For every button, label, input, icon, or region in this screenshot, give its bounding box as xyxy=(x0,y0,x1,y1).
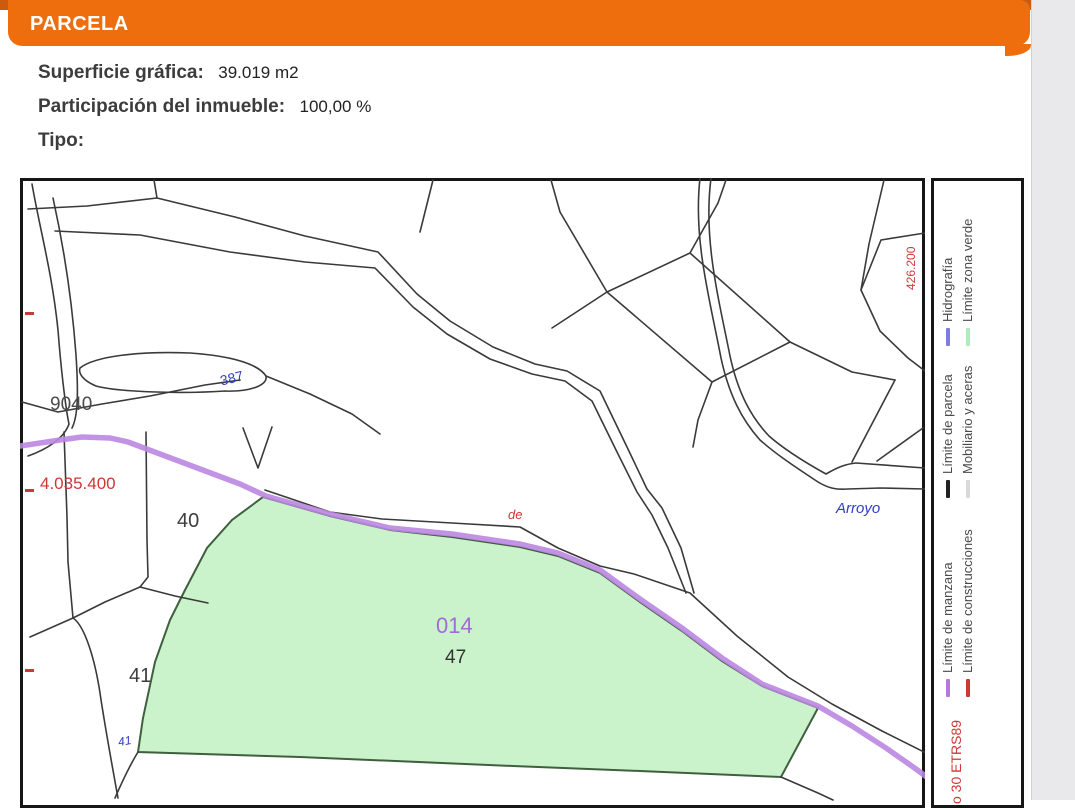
legend-item-l-mite-zona-verde: Límite zona verde xyxy=(961,219,974,346)
superficie-row: Superficie gráfica: 39.019 m2 xyxy=(38,62,299,84)
legend-item-l-mite-de-manzana: Límite de manzana xyxy=(941,562,954,697)
page-edge-strip xyxy=(1031,0,1075,800)
legend-item-hidrograf-a: Hidrografía xyxy=(941,258,954,346)
coordinate-tick-mark xyxy=(25,669,34,672)
legend-swatch xyxy=(946,328,950,346)
legend-item-mobiliario-y-aceras: Mobiliario y aceras xyxy=(961,366,974,498)
page-title: PARCELA xyxy=(30,13,129,36)
block-label-9040: 9040 xyxy=(50,395,92,414)
y-coordinate-label: 4.035.400 xyxy=(40,475,116,492)
legend-swatch xyxy=(966,679,970,697)
street-label-de: de xyxy=(508,508,522,521)
legend-swatch xyxy=(966,480,970,498)
legend-item-l-mite-de-parcela: Límite de parcela xyxy=(941,374,954,498)
legend-swatch xyxy=(946,679,950,697)
legend-swatch xyxy=(946,480,950,498)
legend-label: Mobiliario y aceras xyxy=(960,366,975,474)
legend-label: Límite de parcela xyxy=(940,374,955,474)
legend-swatch xyxy=(966,328,970,346)
parcel-label-41: 41 xyxy=(129,666,151,686)
superficie-value: 39.019 m2 xyxy=(218,63,298,82)
coordinate-tick-mark xyxy=(25,312,34,315)
header-bar-tail xyxy=(1005,44,1031,56)
parcel-label-40: 40 xyxy=(177,511,199,531)
legend-label: Límite de manzana xyxy=(940,562,955,673)
stream-label-arroyo: Arroyo xyxy=(836,501,880,516)
legend-label: Hidrografía xyxy=(940,258,955,322)
datum-label-etrs89: o 30 ETRS89 xyxy=(949,720,963,804)
tipo-label: Tipo: xyxy=(38,130,84,151)
cadastral-map-drawing xyxy=(20,178,925,808)
tipo-row: Tipo: xyxy=(38,130,84,152)
x-coordinate-label: 426.200 xyxy=(905,247,917,290)
legend-item-l-mite-de-construcciones: Límite de construcciones xyxy=(961,529,974,697)
participacion-row: Participación del inmueble: 100,00 % xyxy=(38,96,371,118)
manzana-label-014: 014 xyxy=(436,615,473,637)
superficie-label: Superficie gráfica: xyxy=(38,62,204,83)
parcel-label-47: 47 xyxy=(445,648,466,667)
coordinate-tick-mark xyxy=(25,489,34,492)
vertex-label-41: 41 xyxy=(117,734,132,748)
participacion-label: Participación del inmueble: xyxy=(38,96,285,117)
participacion-value: 100,00 % xyxy=(300,97,372,116)
legend-label: Límite zona verde xyxy=(960,219,975,322)
section-header-bar xyxy=(8,0,1030,46)
legend-label: Límite de construcciones xyxy=(960,529,975,673)
